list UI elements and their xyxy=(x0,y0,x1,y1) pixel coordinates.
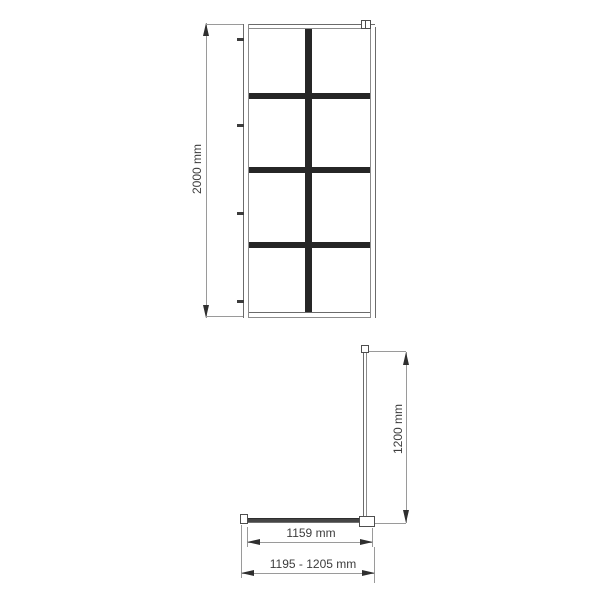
extension-line-right xyxy=(374,547,375,583)
glass-edge-profile xyxy=(363,352,367,519)
dimension-arrow-down-icon xyxy=(403,510,409,523)
height-dimension-line xyxy=(206,23,207,318)
glass-width-dimension-label: 1159 mm xyxy=(286,527,335,539)
panel-top-outer-line xyxy=(243,24,375,25)
panel-bottom-outer-line xyxy=(243,317,375,318)
dimension-arrow-left-icon xyxy=(247,539,260,545)
depth-dimension-label: 1200 mm xyxy=(392,404,404,454)
wall-anchor-icon xyxy=(237,300,244,303)
top-bracket xyxy=(361,20,371,29)
installation-width-dimension-label: 1195 - 1205 mm xyxy=(270,558,357,570)
right-frame-profile xyxy=(370,27,376,318)
top-bracket-notch xyxy=(365,21,366,28)
extension-line-bottom xyxy=(206,316,244,317)
technical-drawing-canvas: 2000 mm 1200 mm xyxy=(0,0,600,600)
dimension-arrow-up-icon xyxy=(403,352,409,365)
bottom-rail xyxy=(241,518,375,523)
extension-line-top xyxy=(368,351,406,352)
height-dimension-label: 2000 mm xyxy=(191,144,203,194)
corner-bracket xyxy=(359,516,375,527)
dimension-arrow-left-icon xyxy=(241,570,254,576)
grid-bar-horizontal xyxy=(249,242,370,248)
wall-anchor-icon xyxy=(237,38,244,41)
grid-bar-horizontal xyxy=(249,93,370,99)
glass-width-dimension-line xyxy=(247,542,373,543)
panel-bottom-inner-line xyxy=(243,312,375,313)
wall-anchor-icon xyxy=(237,212,244,215)
wall-anchor-icon xyxy=(237,124,244,127)
extension-line-bottom xyxy=(374,523,406,524)
dimension-arrow-right-icon xyxy=(360,539,373,545)
dimension-arrow-right-icon xyxy=(362,570,375,576)
extension-line-top xyxy=(206,24,244,25)
left-end-cap xyxy=(240,514,248,524)
installation-width-dimension-line xyxy=(241,573,375,574)
top-cap xyxy=(361,345,369,353)
depth-dimension-line xyxy=(406,352,407,523)
grid-bar-horizontal xyxy=(249,167,370,173)
